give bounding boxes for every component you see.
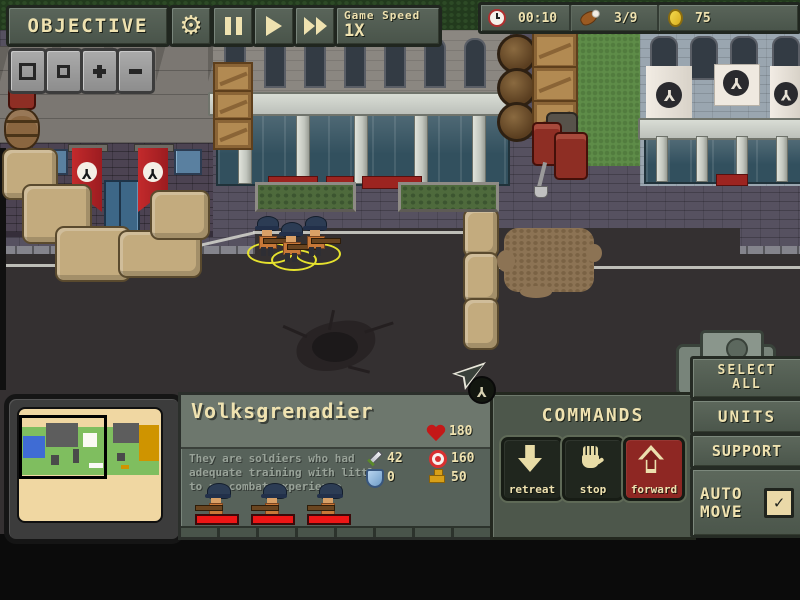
plus-icon [91, 63, 108, 80]
wood-barrel [497, 102, 537, 142]
hedge-planter [255, 182, 356, 212]
gold-value: 75 [695, 11, 711, 26]
soldier-unit[interactable] [279, 222, 305, 264]
fast-forward-button[interactable] [293, 5, 337, 47]
panel-trim [181, 526, 491, 537]
accuracy-value: 160 [451, 451, 474, 466]
drumstick-icon [578, 8, 600, 28]
game-speed-panel: Game Speed 1X [334, 5, 442, 47]
resource-time: 00:10 [481, 5, 571, 31]
soldier-unit[interactable] [255, 216, 281, 258]
health-icon [429, 427, 443, 441]
dirt-patch [504, 228, 594, 292]
clock-icon [488, 9, 506, 27]
select-all-label: SELECT [718, 364, 777, 378]
units-label: UNITS [718, 407, 776, 426]
unit-description-line: adequate training with little [189, 466, 381, 480]
left-building-window [174, 149, 202, 175]
forward-arrow-icon [638, 445, 664, 473]
forward-label: forward [626, 483, 682, 496]
retreat-arrow-icon [518, 445, 542, 472]
wood-crate [213, 118, 253, 150]
column [776, 136, 788, 182]
rations-value: 3/9 [614, 11, 637, 26]
minimap-mark [117, 453, 125, 461]
dirt-patch [497, 250, 515, 272]
retreat-button[interactable]: retreat [501, 437, 563, 501]
commands-panel: COMMANDS retreat stop forward [490, 392, 696, 540]
auto-move-button[interactable]: AUTO MOVE ✓ [690, 467, 800, 538]
wood-barrel [4, 108, 40, 150]
objective-button[interactable]: OBJECTIVE [6, 5, 170, 47]
game-screen: Y Y Y Y Y [0, 0, 800, 600]
zoom-in-button[interactable] [80, 48, 119, 94]
minimap-frame[interactable] [4, 394, 184, 544]
check-icon: ✓ [774, 493, 784, 513]
gear-icon: ⚙ [179, 13, 202, 39]
unit-health-bar [307, 514, 351, 525]
select-all-button[interactable]: SELECT ALL [690, 356, 800, 400]
speed-value: 50 [451, 470, 467, 485]
minimap-block-orange [139, 425, 159, 461]
column [354, 112, 368, 184]
resource-gold: 75 [659, 5, 798, 31]
auto-move-label: AUTO [700, 485, 743, 503]
speed-icon [429, 469, 445, 483]
settings-button[interactable]: ⚙ [169, 5, 213, 47]
sandbag [150, 190, 210, 240]
column [696, 136, 708, 182]
play-button[interactable] [252, 5, 296, 47]
unit-portrait[interactable] [195, 483, 239, 515]
sandbag-column [463, 298, 499, 350]
units-button[interactable]: UNITS [690, 398, 800, 435]
faction-emblem-icon: Y [77, 162, 97, 182]
retreat-label: retreat [504, 483, 560, 496]
pause-button[interactable] [211, 5, 255, 47]
minimap-terrain [21, 427, 159, 475]
wood-crate [532, 32, 578, 70]
wood-crate [532, 66, 578, 104]
attack-icon [365, 451, 381, 467]
minimap-block-gray [113, 423, 139, 443]
unit-description-line: They are soldiers who had [189, 452, 355, 466]
unit-info-panel: Volksgrenadier 180 They are soldiers who… [178, 392, 494, 540]
focus-corners-icon [57, 65, 70, 78]
sandbag-column [463, 252, 499, 304]
soldier-unit[interactable] [303, 216, 329, 258]
time-value: 00:10 [518, 11, 557, 26]
unit-health-bar [251, 514, 295, 525]
unit-panel-header: Volksgrenadier 180 [181, 395, 491, 449]
column [296, 112, 310, 184]
commands-title: COMMANDS [493, 405, 693, 426]
mid-building-awning [208, 92, 510, 116]
camera-pan-button[interactable] [8, 48, 47, 94]
armor-value: 0 [387, 470, 395, 485]
mid-building-window [464, 38, 486, 88]
sandbag-column [463, 208, 499, 258]
column [656, 136, 668, 182]
accuracy-icon [429, 450, 447, 468]
column [472, 112, 486, 184]
entrance-carpet [716, 174, 748, 186]
dirt-patch [520, 286, 552, 298]
faction-emblem-icon: Y [656, 82, 682, 108]
forward-button[interactable]: forward [623, 437, 685, 501]
pause-icon [225, 17, 231, 35]
hedge-planter [398, 182, 499, 212]
red-barrel [554, 132, 588, 180]
minimap-viewport[interactable] [19, 415, 107, 479]
dirt-patch [586, 244, 602, 262]
unit-portrait[interactable] [251, 483, 295, 515]
armor-icon [366, 469, 384, 488]
unit-health-bar [195, 514, 239, 525]
camera-center-button[interactable] [44, 48, 83, 94]
faction-emblem-icon: Y [723, 70, 749, 96]
auto-move-checkbox[interactable]: ✓ [764, 488, 794, 518]
support-label: SUPPORT [712, 442, 782, 460]
stop-button[interactable]: stop [562, 437, 624, 501]
stop-label: stop [565, 483, 621, 496]
zoom-out-button[interactable] [116, 48, 155, 94]
health-value: 180 [449, 424, 472, 439]
crater-core [312, 332, 358, 362]
support-button[interactable]: SUPPORT [690, 433, 800, 469]
attack-value: 42 [387, 451, 403, 466]
game-speed-value: 1X [344, 21, 364, 41]
door-split [119, 182, 121, 228]
faction-emblem-icon: Y [774, 82, 798, 106]
unit-portrait[interactable] [307, 483, 351, 515]
column [414, 112, 428, 184]
expand-corners-icon [19, 63, 36, 80]
mouse-cursor [452, 362, 486, 394]
unit-name: Volksgrenadier [191, 399, 374, 423]
minimap-screen[interactable] [17, 407, 163, 523]
faction-emblem-icon: Y [143, 162, 163, 182]
minimap-mark-orange [121, 465, 129, 469]
stop-hand-icon [579, 446, 603, 472]
resource-bar: 00:10 3/9 75 [478, 2, 800, 34]
fast-forward-icon [304, 17, 315, 35]
play-icon [266, 16, 282, 36]
coin-icon [668, 9, 683, 27]
shovel-blade [534, 186, 548, 198]
resource-rations: 3/9 [571, 5, 659, 31]
minus-icon [127, 63, 144, 80]
